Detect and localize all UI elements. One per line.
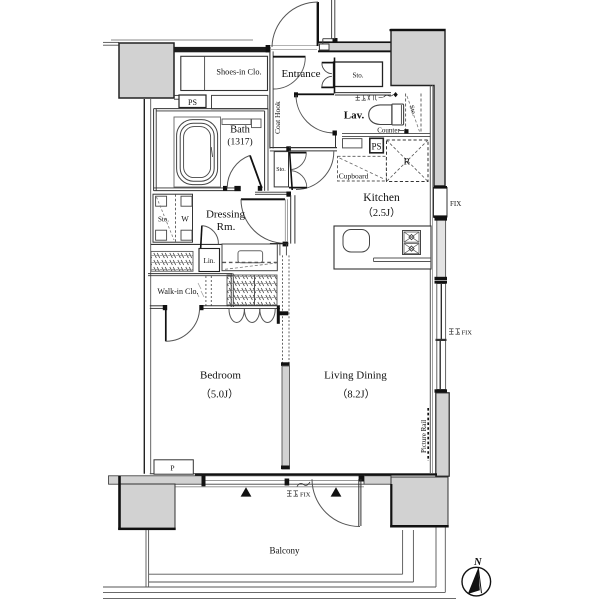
svg-text:Sto.: Sto. — [276, 167, 286, 173]
svg-text:（5.0J）: （5.0J） — [200, 389, 238, 401]
svg-text:Lin.: Lin. — [204, 257, 216, 265]
svg-text:Kitchen: Kitchen — [363, 192, 400, 204]
svg-text:Living Dining: Living Dining — [324, 370, 387, 382]
svg-text:Coat Hook: Coat Hook — [273, 101, 282, 134]
svg-text:FIX: FIX — [462, 330, 473, 337]
svg-text:Lav.: Lav. — [344, 110, 365, 122]
svg-text:Sto.: Sto. — [158, 216, 169, 224]
svg-text:FIX: FIX — [450, 200, 461, 208]
svg-text:FIX: FIX — [300, 492, 311, 499]
svg-text:Counter: Counter — [377, 127, 400, 135]
svg-text:Entrance: Entrance — [281, 68, 320, 80]
svg-text:Dressing: Dressing — [206, 209, 246, 221]
svg-text:Bedroom: Bedroom — [200, 370, 241, 382]
svg-text:Picture Rail: Picture Rail — [420, 420, 428, 453]
svg-text:R: R — [404, 158, 411, 168]
svg-text:Sto.: Sto. — [352, 72, 363, 80]
svg-text:Bath: Bath — [230, 125, 251, 136]
svg-text:Shoes-in Clo.: Shoes-in Clo. — [216, 68, 261, 77]
svg-text:W: W — [181, 215, 189, 224]
svg-text:P: P — [170, 464, 174, 473]
svg-text:Walk-in Clo.: Walk-in Clo. — [157, 287, 198, 296]
svg-text:(1317): (1317) — [227, 137, 252, 148]
svg-text:Cupboard: Cupboard — [339, 171, 369, 180]
svg-text:PS: PS — [188, 98, 197, 107]
svg-text:（8.2J）: （8.2J） — [337, 389, 375, 401]
svg-text:Rm.: Rm. — [217, 221, 236, 233]
svg-text:Balcony: Balcony — [270, 546, 300, 556]
svg-text:PS: PS — [371, 142, 381, 152]
svg-text:（2.5J）: （2.5J） — [362, 207, 400, 219]
svg-text:N: N — [473, 557, 482, 568]
